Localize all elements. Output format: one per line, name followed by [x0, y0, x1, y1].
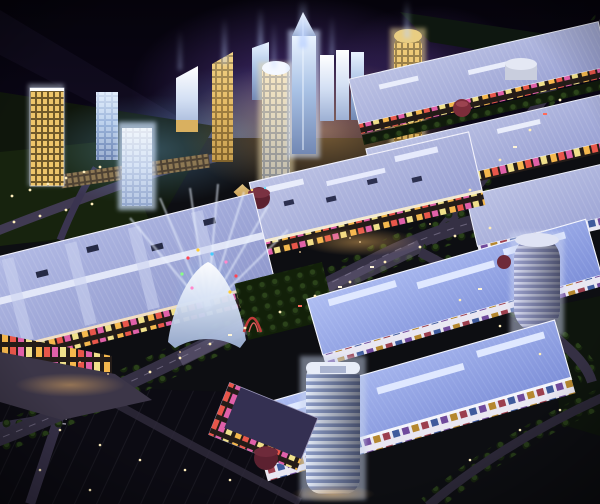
architectural-rendering [0, 0, 600, 504]
scene-svg [0, 0, 600, 504]
vignette [0, 0, 600, 504]
